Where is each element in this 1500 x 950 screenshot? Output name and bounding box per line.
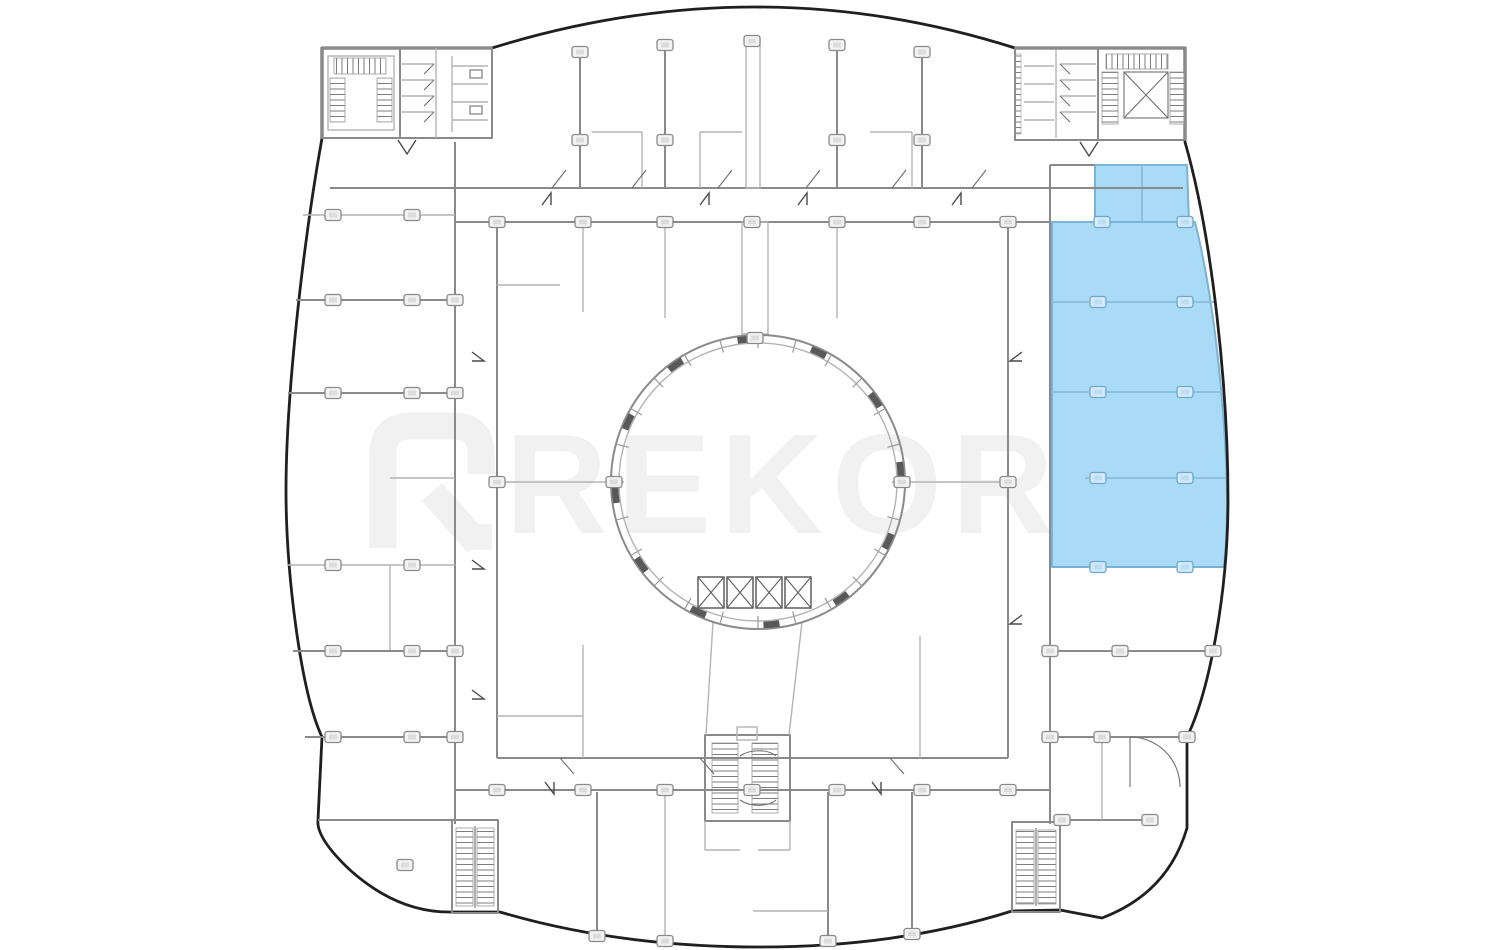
stair-flight bbox=[334, 58, 386, 74]
stair-flight bbox=[330, 78, 345, 122]
stair-flight bbox=[477, 828, 494, 906]
elevator-shaft bbox=[727, 577, 753, 608]
floor-plan-page: REKORB bbox=[0, 0, 1500, 950]
elevator-shaft bbox=[698, 577, 724, 608]
stair-flight bbox=[1170, 72, 1184, 124]
stair-flight bbox=[1038, 830, 1056, 904]
top-band-walls bbox=[552, 40, 986, 188]
stairs-core-bottom-right bbox=[1012, 822, 1060, 912]
stairs-core-top-left bbox=[322, 48, 492, 154]
wc-stalls bbox=[1024, 50, 1096, 138]
stairs-core-bottom-left bbox=[452, 820, 498, 913]
highlighted-unit[interactable] bbox=[1052, 165, 1227, 573]
watermark-logo bbox=[383, 426, 492, 550]
elevator-shaft bbox=[785, 577, 811, 608]
elevator-bank bbox=[698, 577, 811, 608]
floor-plan-svg: REKORB bbox=[0, 0, 1500, 950]
stair-flight bbox=[752, 743, 778, 813]
stair-flight bbox=[1102, 72, 1118, 124]
elevator-shaft bbox=[756, 577, 782, 608]
stair-flight bbox=[1106, 54, 1168, 69]
stairs-core-top-right bbox=[1015, 48, 1185, 156]
door-arc bbox=[1130, 737, 1180, 787]
highlighted-unit-main-area[interactable] bbox=[1052, 222, 1227, 567]
stair-flight bbox=[377, 78, 392, 122]
stair-flight bbox=[456, 828, 473, 906]
stair-flight bbox=[1016, 830, 1034, 904]
wc-stalls bbox=[402, 48, 488, 138]
stair-flight bbox=[712, 743, 738, 813]
